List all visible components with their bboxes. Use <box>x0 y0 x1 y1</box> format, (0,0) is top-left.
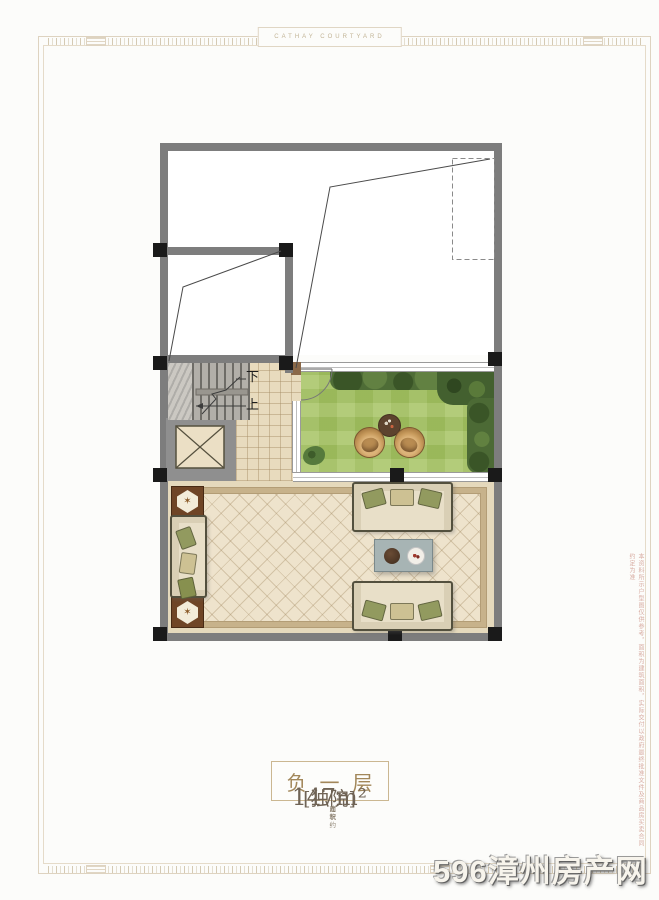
window-band <box>293 472 392 482</box>
shrub-hedge-right <box>467 398 494 473</box>
wall <box>160 143 502 151</box>
wall <box>160 247 293 255</box>
side-table-lamp: ✶ <box>171 486 204 517</box>
lamp-icon: ✶ <box>177 601 198 624</box>
frame-divider <box>86 37 106 46</box>
elevator-shaft <box>166 418 236 481</box>
frame-divider <box>583 37 603 46</box>
frame-divider <box>86 865 106 874</box>
shrub-hedge-top <box>330 370 448 390</box>
watermark-text: 596漳州房产网 <box>433 846 648 891</box>
column <box>279 243 293 257</box>
window-band <box>292 401 301 473</box>
column <box>488 352 502 366</box>
coffee-table <box>374 539 433 572</box>
column <box>488 468 502 482</box>
plate-icon <box>407 547 425 565</box>
area-value: 147m² <box>292 788 367 809</box>
stair-landing <box>168 363 192 420</box>
column <box>488 627 502 641</box>
wall <box>160 143 168 641</box>
side-table-lamp: ✶ <box>171 597 204 628</box>
bowl-icon <box>384 548 400 564</box>
pillow <box>390 603 414 620</box>
wall <box>160 355 293 363</box>
stair-label-up: 上 <box>246 399 259 412</box>
wall <box>160 633 502 641</box>
project-name-label: CATHAY COURTYARD <box>257 27 401 47</box>
staircase <box>192 363 250 420</box>
window-band <box>402 472 490 482</box>
window-band <box>301 362 494 372</box>
column <box>153 356 167 370</box>
pillow <box>179 552 198 575</box>
column <box>153 468 167 482</box>
column <box>279 356 293 370</box>
vertical-disclaimer-text: 本资料所示户型图仅供参考，面积为建筑面积，实际交付以政府最终批准文件及商品房买卖… <box>627 553 645 847</box>
lamp-icon: ✶ <box>177 490 198 513</box>
column <box>153 243 167 257</box>
stair-label-down: 下 <box>246 371 259 384</box>
column <box>390 468 404 482</box>
pillow <box>390 489 414 506</box>
wall <box>494 143 502 641</box>
floorplan-poster: CATHAY COURTYARD ✶ ✶ <box>0 0 659 900</box>
column <box>153 627 167 641</box>
